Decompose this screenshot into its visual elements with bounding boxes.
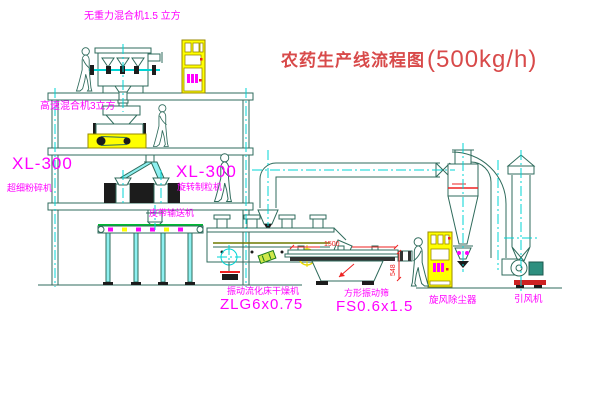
label-screen-model: FS0.6x1.5 <box>336 299 413 314</box>
label-dryer-model: ZLG6x0.75 <box>220 297 303 312</box>
label-cyclone-name: 旋风除尘器 <box>429 296 477 306</box>
label-granulator-name: 旋转制粒机 <box>177 183 222 192</box>
dimension-screen-length: 1500 <box>324 241 340 248</box>
cabinet-symbol-icon <box>433 263 444 272</box>
belt-conveyor <box>98 225 203 285</box>
title-text: 农药生产线流程图 <box>281 46 425 71</box>
granulator-assembly <box>104 155 180 203</box>
control-cabinet-lower <box>428 232 452 287</box>
label-mill-name: 超细粉碎机 <box>7 184 52 193</box>
label-belt-conveyor: 皮带输送机 <box>149 209 194 218</box>
label-top-mixer: 无重力混合机1.5 立方 <box>84 12 181 22</box>
label-floor2-mixer: 高速混合机3立方 <box>40 102 116 112</box>
control-cabinet-upper <box>182 40 205 93</box>
ground-lines <box>38 285 562 288</box>
person-roof-icon <box>76 48 91 91</box>
dimension-screen-height: 548 <box>390 264 397 276</box>
person-ground-icon <box>411 238 428 286</box>
person-floor2-icon <box>153 105 168 147</box>
cabinet-symbol-icon <box>187 74 198 83</box>
label-granulator-model: XL-300 <box>176 163 237 180</box>
label-screen-name: 方形振动筛 <box>344 289 389 298</box>
title-capacity: (500kg/h) <box>427 46 537 74</box>
diagram-title: 农药生产线流程图 (500kg/h) <box>281 46 537 71</box>
label-dryer-name: 振动流化床干燥机 <box>227 287 299 296</box>
pesticide-line-flow-diagram: 农药生产线流程图 (500kg/h) 无重力混合机1.5 立方 高速混合机3立方… <box>0 0 600 403</box>
high-speed-mixer <box>88 106 146 148</box>
label-mill-model: XL-300 <box>12 155 73 172</box>
induced-draft-fan <box>502 259 546 288</box>
label-fan-name: 引风机 <box>514 295 543 305</box>
